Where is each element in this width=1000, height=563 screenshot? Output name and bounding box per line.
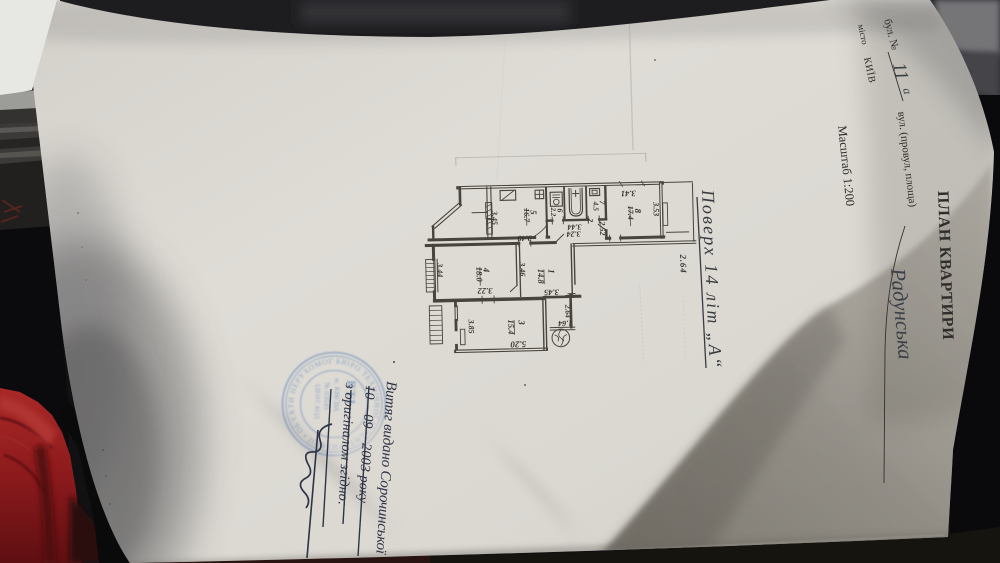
svg-text:3.45: 3.45 [543,287,560,297]
svg-text:1.64: 1.64 [558,319,572,328]
svg-text:2: 2 [586,217,595,222]
svg-text:3.45: 3.45 [490,210,499,225]
svg-text:3: 3 [517,319,527,325]
svg-text:3.22: 3.22 [477,286,494,296]
svg-text:5.20: 5.20 [510,339,526,349]
svg-text:3.44: 3.44 [435,262,444,277]
svg-text:2.64: 2.64 [563,304,572,319]
svg-text:3.48: 3.48 [518,234,533,243]
svg-text:4.5: 4.5 [591,200,600,211]
svg-text:18.0: 18.0 [474,267,484,283]
svg-text:2.52: 2.52 [598,220,607,235]
svg-text:17.4: 17.4 [626,206,635,220]
svg-text:2.2: 2.2 [549,206,557,216]
svg-text:2.64: 2.64 [678,253,688,273]
svg-text:1: 1 [546,269,556,274]
svg-text:ІДЕНТ. КОД: ІДЕНТ. КОД [313,384,321,420]
svg-text:3.85: 3.85 [467,318,476,333]
svg-text:3.24: 3.24 [566,229,581,238]
svg-text:14.8: 14.8 [536,269,546,285]
svg-text:3.53: 3.53 [651,201,660,216]
svg-text:м. КИЄВА: м. КИЄВА [332,378,342,413]
svg-text:3.41: 3.41 [621,189,637,199]
svg-text:3.46: 3.46 [518,261,527,276]
svg-text:15.4: 15.4 [506,319,516,334]
